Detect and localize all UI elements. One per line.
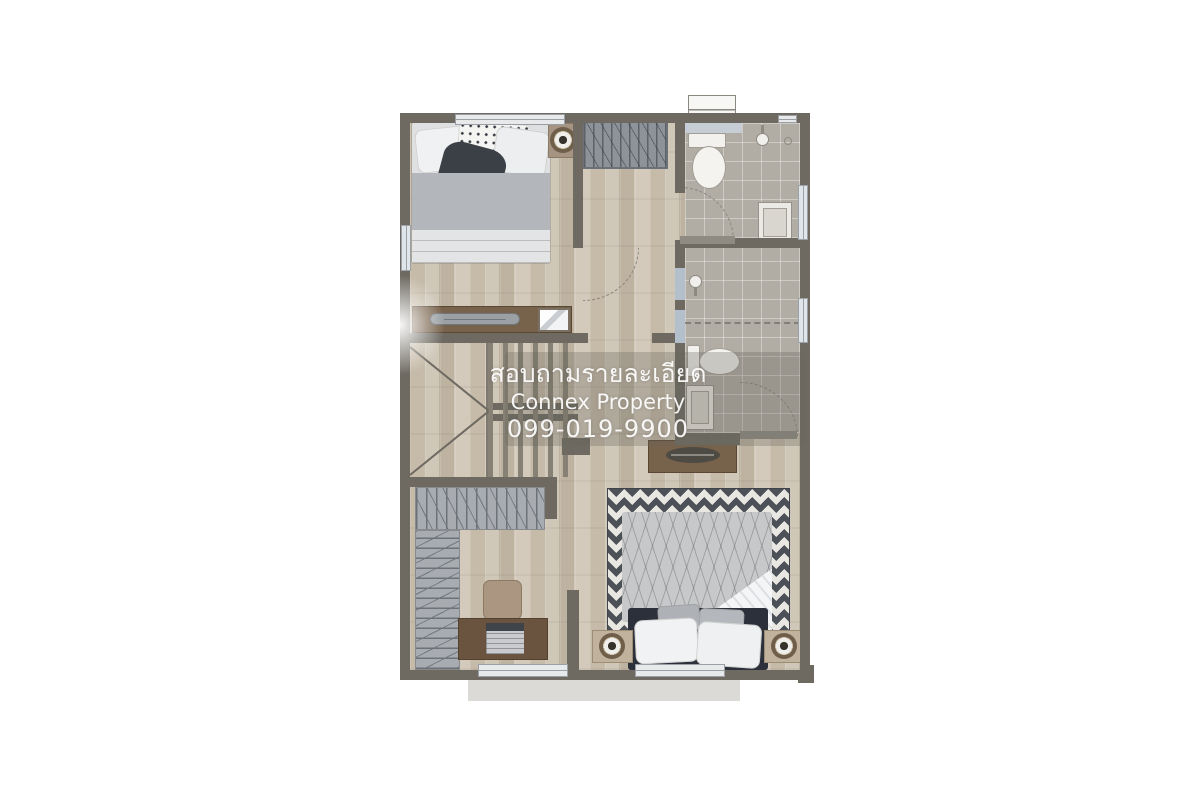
shower-divider: [685, 322, 800, 324]
master-lamp-left: [599, 633, 625, 659]
laptop-keyboard: [486, 631, 524, 654]
closet-rack-top: [415, 487, 545, 530]
bathroom2-shower-arm: [694, 287, 697, 296]
bathroom1-door: [680, 236, 735, 244]
wall-bedroom2-hall: [573, 123, 583, 248]
watermark-brand: Connex Property: [448, 389, 748, 415]
bathroom2-wall-glass-lower: [675, 310, 685, 343]
exterior-wall-left: [400, 113, 410, 680]
wall-hall-bathrooms-upper: [675, 123, 685, 193]
bathroom1-right-window: [798, 185, 808, 240]
bathroom1-shower-head: [756, 133, 769, 146]
white-vignette: [355, 275, 445, 375]
console-mirror: [538, 308, 570, 332]
bathroom1-drain: [784, 137, 792, 145]
bedroom2-duvet: [412, 173, 550, 230]
bathroom2-wall-glass-upper: [675, 268, 685, 300]
bathroom1-vent-window: [778, 115, 797, 123]
pillow: [634, 617, 699, 664]
closet-bottom-window: [478, 664, 568, 677]
pillow: [696, 621, 763, 669]
floor-plan-canvas: สอบถามรายละเอียด Connex Property 099-019…: [0, 0, 1200, 800]
bathroom1-sill: [676, 123, 742, 133]
wardrobe: [582, 121, 668, 169]
bedroom2-left-window: [401, 225, 411, 271]
bedroom2-bed: [412, 123, 550, 263]
bedroom2-sheet: [412, 230, 550, 263]
desk-chair: [483, 580, 522, 620]
bedroom2-top-window: [455, 114, 565, 125]
watermark-phone: 099-019-9900: [448, 415, 748, 443]
master-lamp-right: [771, 633, 797, 659]
watermark: สอบถามรายละเอียด Connex Property 099-019…: [448, 358, 748, 443]
laptop-screen: [486, 623, 524, 631]
watermark-line-thai: สอบถามรายละเอียด: [448, 358, 748, 389]
wall-hall-master: [567, 590, 579, 670]
master-bottom-window: [635, 664, 725, 677]
wall-closet-stub: [545, 477, 557, 519]
exterior-wall-bottom: [400, 670, 810, 680]
sink-basin: [763, 208, 787, 237]
bathroom1-sink: [758, 202, 792, 243]
dresser-tray: [666, 447, 720, 463]
bathroom2-right-window: [798, 298, 808, 343]
closet-rack-left: [415, 530, 460, 670]
bathroom1-toilet-bowl: [692, 146, 726, 189]
bathroom1-shower-arm: [761, 125, 764, 134]
wall-stairs-closet: [410, 477, 550, 487]
